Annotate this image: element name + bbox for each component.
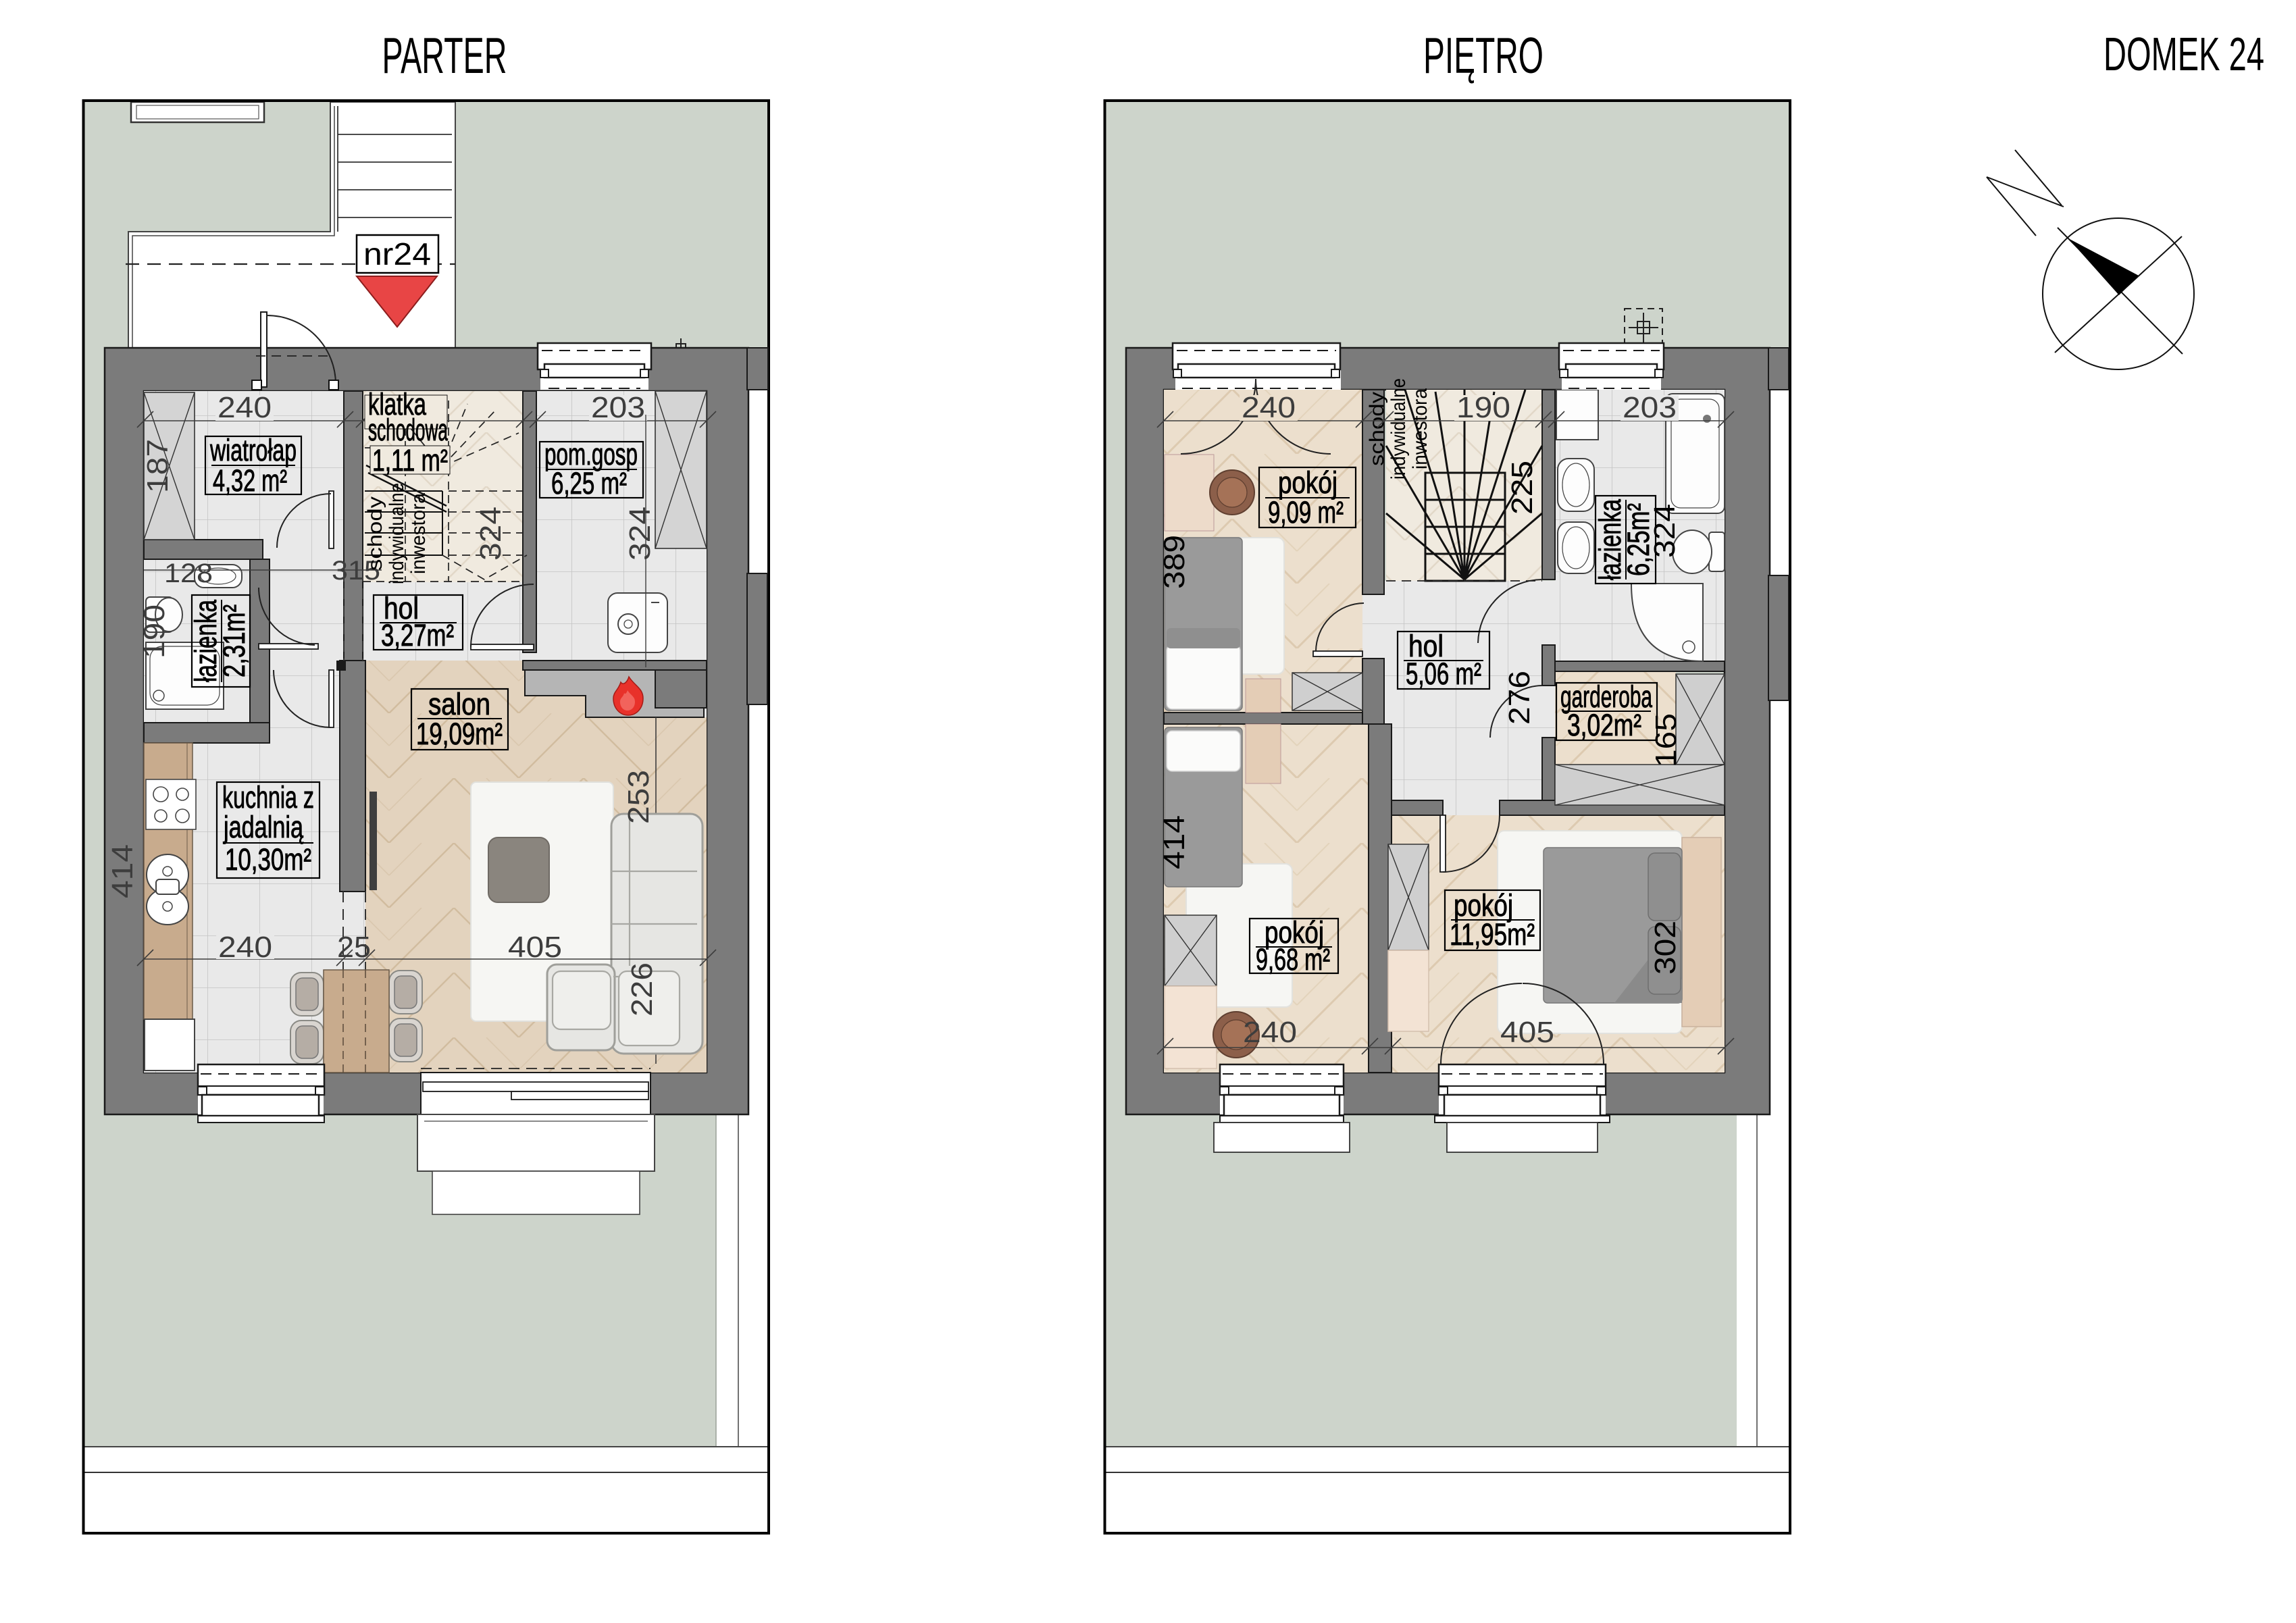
svg-text:inwestora: inwestora — [1409, 388, 1431, 469]
svg-text:253: 253 — [622, 770, 655, 824]
svg-text:405: 405 — [508, 931, 562, 964]
svg-text:schody: schody — [364, 496, 386, 571]
svg-text:10,30m²: 10,30m² — [225, 842, 311, 877]
svg-text:4,32 m²: 4,32 m² — [213, 463, 287, 498]
svg-text:414: 414 — [1158, 815, 1191, 869]
svg-text:9,09 m²: 9,09 m² — [1268, 495, 1344, 530]
svg-text:240: 240 — [218, 391, 272, 424]
svg-text:324: 324 — [474, 507, 507, 561]
svg-text:3,27m²: 3,27m² — [381, 618, 454, 652]
svg-text:19,09m²: 19,09m² — [416, 717, 503, 751]
svg-text:6,25 m²: 6,25 m² — [551, 466, 627, 500]
svg-text:414: 414 — [106, 844, 139, 898]
svg-text:11,95m²: 11,95m² — [1450, 917, 1535, 952]
svg-text:2,31m²: 2,31m² — [217, 604, 251, 677]
svg-text:240: 240 — [1243, 1016, 1297, 1049]
svg-text:wiatrołap: wiatrołap — [209, 433, 297, 467]
svg-text:405: 405 — [1500, 1016, 1554, 1049]
svg-text:PARTER: PARTER — [382, 27, 507, 84]
svg-text:schody: schody — [1366, 392, 1388, 466]
svg-text:DOMEK 24: DOMEK 24 — [2103, 28, 2264, 80]
svg-text:1,11 m²: 1,11 m² — [372, 443, 448, 478]
svg-text:187: 187 — [141, 439, 174, 493]
svg-text:225: 225 — [1506, 461, 1539, 515]
svg-text:389: 389 — [1158, 535, 1191, 589]
svg-text:3,02m²: 3,02m² — [1567, 708, 1641, 742]
svg-text:203: 203 — [591, 391, 645, 424]
svg-text:203: 203 — [1623, 391, 1677, 424]
svg-text:226: 226 — [626, 962, 659, 1016]
svg-text:276: 276 — [1503, 671, 1536, 725]
svg-text:6,25m²: 6,25m² — [1621, 503, 1656, 576]
svg-text:PIĘTRO: PIĘTRO — [1423, 27, 1544, 84]
svg-text:jadalnią: jadalnią — [222, 810, 303, 844]
svg-text:128: 128 — [164, 559, 213, 588]
svg-text:240: 240 — [1242, 391, 1296, 424]
svg-text:9,68 m²: 9,68 m² — [1256, 942, 1330, 977]
svg-text:schodowa: schodowa — [368, 413, 449, 447]
svg-text:25: 25 — [337, 931, 371, 964]
svg-text:indywidualne: indywidualne — [1387, 378, 1410, 480]
svg-text:5,06 m²: 5,06 m² — [1406, 656, 1481, 691]
svg-text:240: 240 — [218, 931, 272, 964]
svg-text:302: 302 — [1649, 921, 1682, 975]
svg-text:324: 324 — [623, 507, 657, 561]
svg-text:inwestora: inwestora — [407, 493, 430, 574]
svg-text:indywidualne: indywidualne — [386, 483, 408, 584]
svg-text:190: 190 — [138, 604, 171, 659]
svg-text:nr24: nr24 — [363, 236, 431, 272]
svg-text:190: 190 — [1456, 391, 1510, 424]
